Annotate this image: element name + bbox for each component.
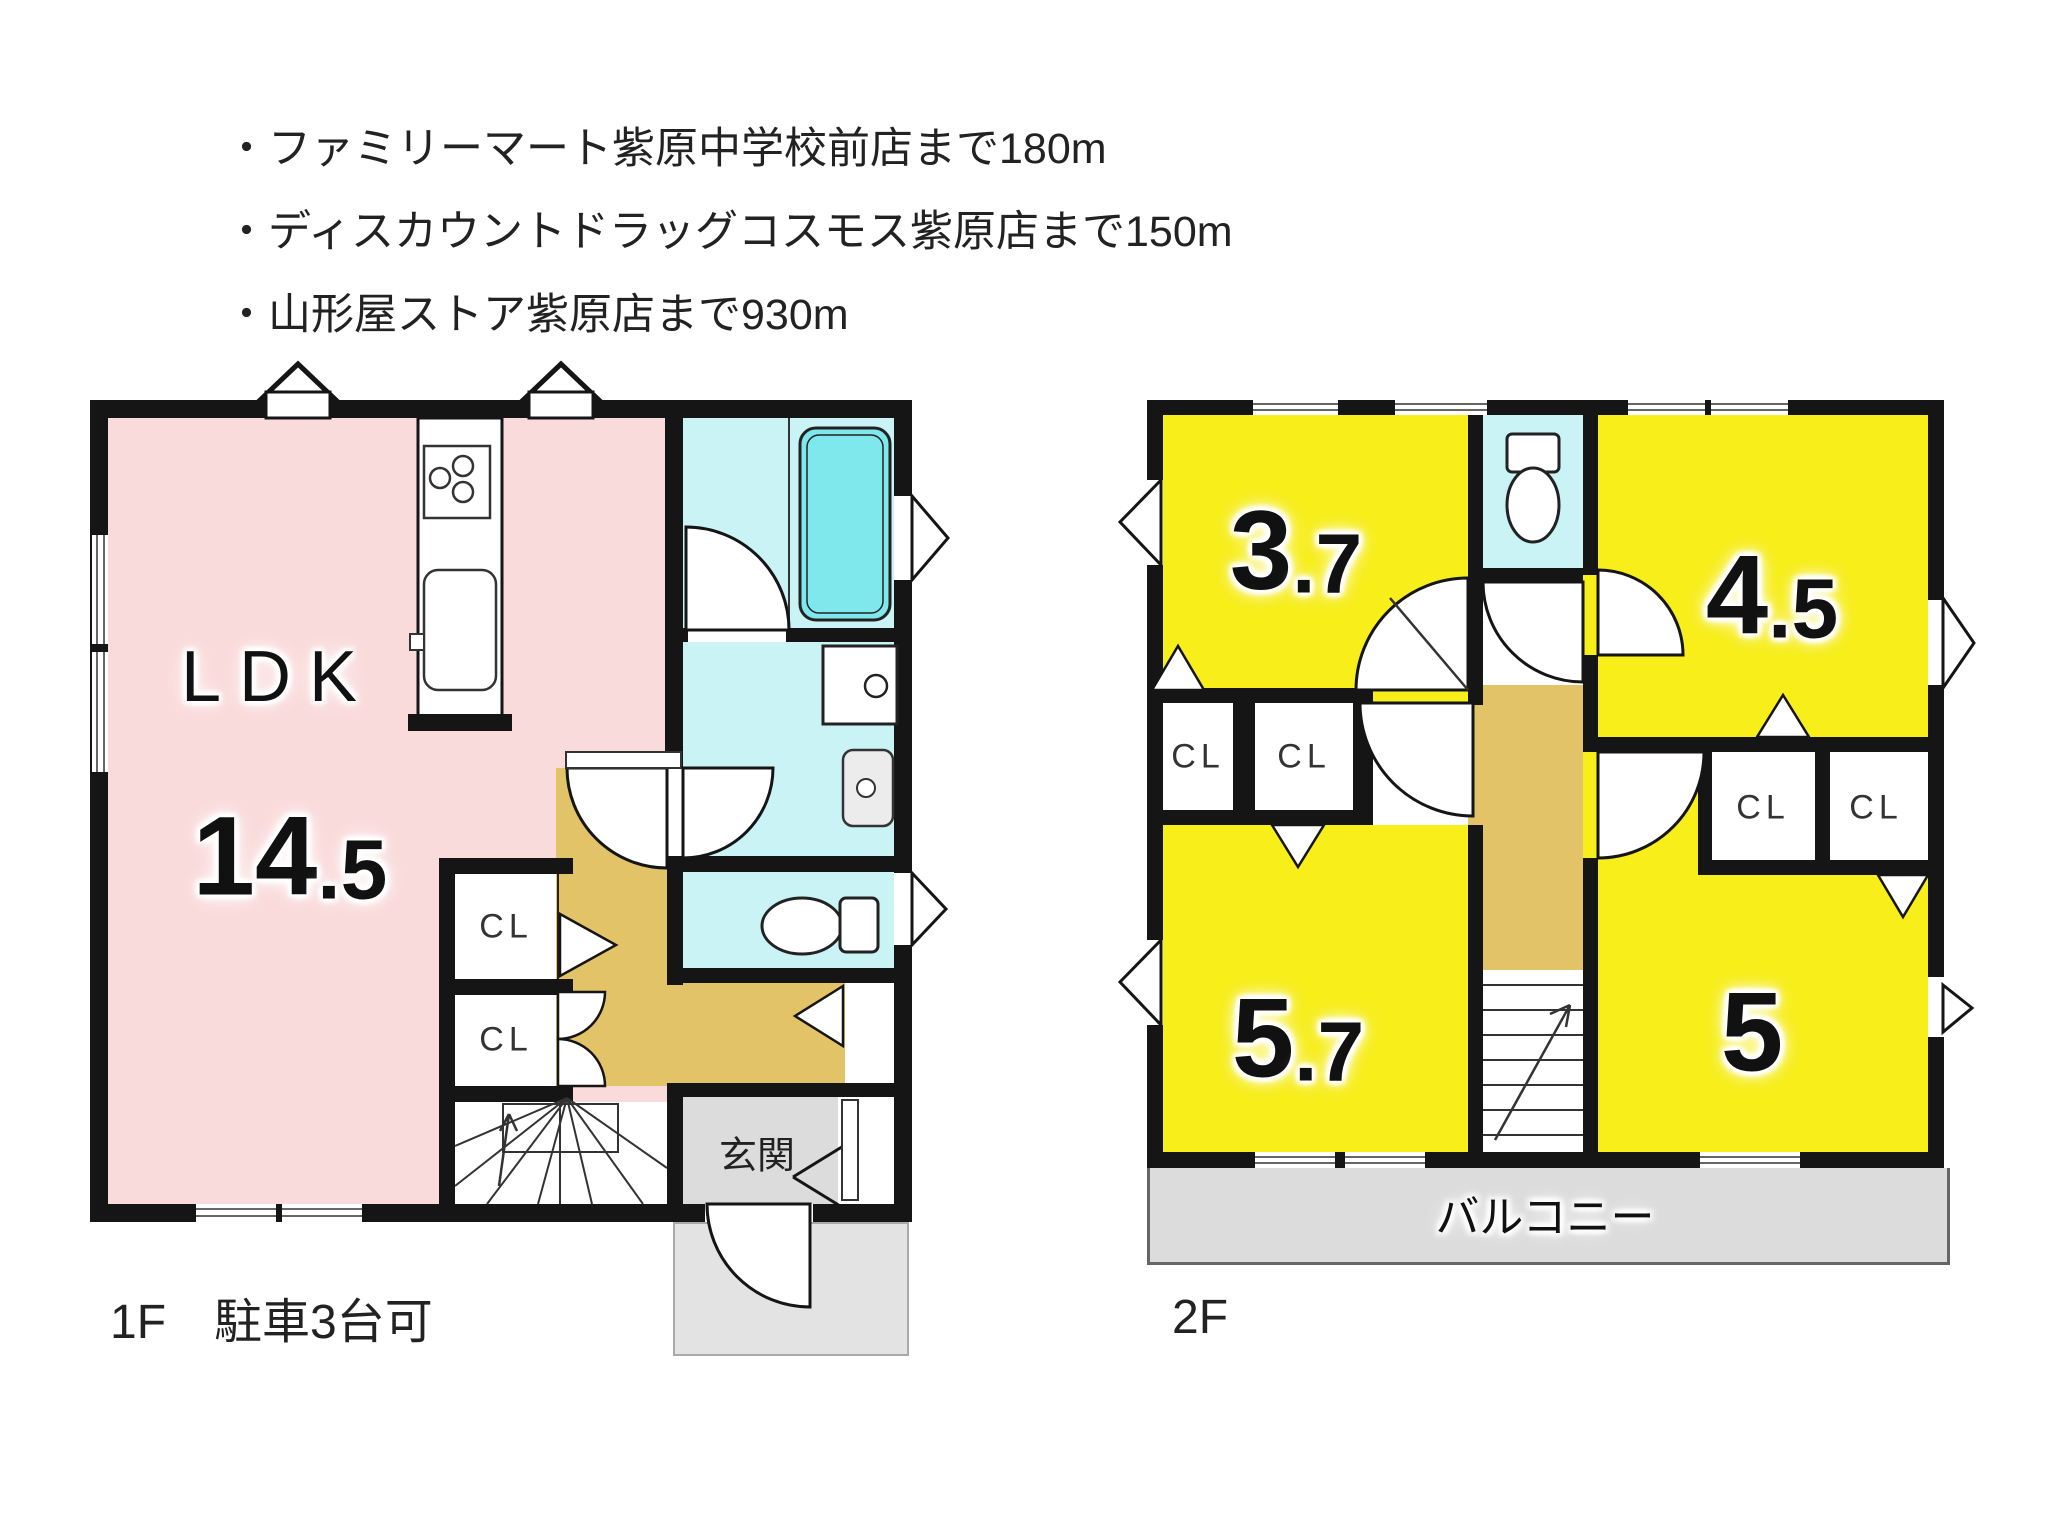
vent-hood-icon <box>521 364 601 402</box>
wall <box>439 1086 573 1102</box>
entrance-label: 玄関 <box>719 1125 795 1180</box>
room-washroom <box>683 642 894 856</box>
hall-2f <box>1483 685 1583 970</box>
room-4-5-size: 4.5 <box>1706 531 1838 660</box>
shoe-cabinet-icon <box>842 1100 858 1200</box>
wall <box>1147 400 1944 415</box>
wall <box>1583 858 1598 1152</box>
toilet-vestibule <box>1483 582 1583 685</box>
wall <box>667 968 909 983</box>
wall <box>1233 703 1255 810</box>
wall <box>1698 860 1944 875</box>
closet-label: CL <box>1736 789 1789 828</box>
wall <box>90 400 912 418</box>
wall <box>1583 415 1598 575</box>
wall <box>90 400 108 1222</box>
wall <box>1583 655 1598 752</box>
room-toilet-1f <box>683 872 894 968</box>
wall <box>1698 752 1712 860</box>
entrance-porch <box>673 1222 909 1356</box>
hall-2f-passage <box>1468 703 1483 825</box>
room-5-size: 5 <box>1721 968 1783 1097</box>
nearby-store-notes: ・ファミリーマート紫原中学校前店まで180m ・ディスカウントドラッグコスモス紫… <box>225 108 1233 357</box>
closet-label: CL <box>479 908 532 947</box>
wall <box>667 1083 683 1222</box>
wall <box>667 1083 912 1097</box>
wall <box>894 400 912 1222</box>
wall <box>665 628 912 642</box>
wall <box>1483 568 1583 582</box>
floor-plan-canvas: ・ファミリーマート紫原中学校前店まで180m ・ディスカウントドラッグコスモス紫… <box>0 0 2048 1536</box>
room-5-7-size: 5.7 <box>1232 974 1364 1103</box>
wall <box>1815 752 1830 860</box>
wall <box>439 979 573 995</box>
room-bathroom <box>683 418 894 628</box>
closet-label: CL <box>1849 789 1902 828</box>
note-line: ・ファミリーマート紫原中学校前店まで180m <box>225 108 1233 191</box>
vestibule-2f <box>1373 703 1468 825</box>
wall <box>1163 688 1373 703</box>
wall <box>1468 825 1483 1152</box>
stairs-1f <box>455 1102 667 1204</box>
balcony-label: バルコニー <box>1435 1181 1654 1245</box>
note-line: ・山形屋ストア紫原店まで930m <box>225 274 1233 357</box>
stairs-2f <box>1483 970 1583 1152</box>
ldk-label: LDK <box>181 636 375 718</box>
wall <box>1598 737 1928 752</box>
wall <box>1163 810 1373 825</box>
room-toilet-2f <box>1483 415 1583 568</box>
hall-side-white <box>845 983 894 1083</box>
wall <box>665 418 683 768</box>
closet-label: CL <box>1171 738 1224 777</box>
wall <box>1147 400 1163 1168</box>
wall <box>667 856 912 872</box>
wall <box>667 856 683 985</box>
closet-label: CL <box>479 1021 532 1060</box>
hall-1f <box>556 768 667 1086</box>
wall <box>1928 400 1944 1168</box>
floor2-caption: 2F <box>1172 1290 1228 1345</box>
room-3-7-size: 3.7 <box>1230 486 1362 615</box>
note-line: ・ディスカウントドラッグコスモス紫原店まで150m <box>225 191 1233 274</box>
ldk-size: 14.5 <box>193 792 388 921</box>
vent-hood-icon <box>258 364 338 402</box>
wall <box>90 1204 912 1222</box>
wall <box>439 858 573 874</box>
wall <box>1468 415 1483 705</box>
wall <box>439 858 455 1222</box>
hall-1f-strip <box>667 983 845 1083</box>
floor1-caption: 1F 駐車3台可 <box>110 1282 433 1352</box>
closet-label: CL <box>1277 738 1330 777</box>
wall <box>1147 1152 1944 1168</box>
wall <box>1353 703 1373 810</box>
